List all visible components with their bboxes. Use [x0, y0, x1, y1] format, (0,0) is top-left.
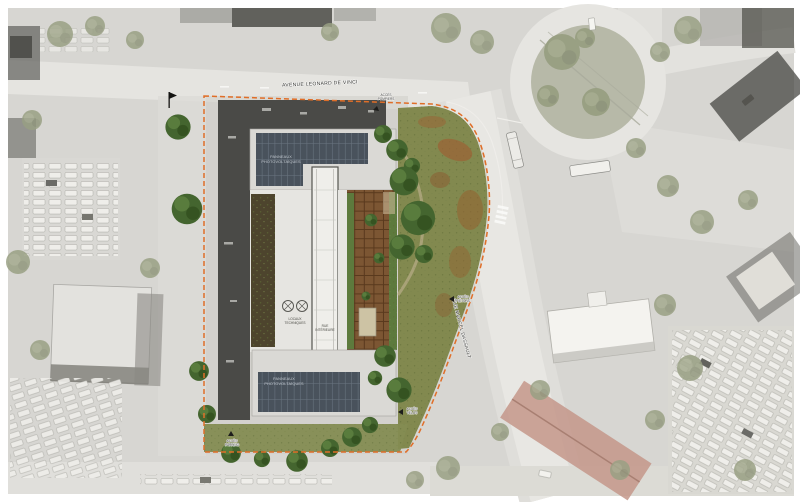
- courtyard-walk: [338, 190, 347, 352]
- atrium-label: RUE: [322, 324, 329, 328]
- tech-label: TECHNIQUES: [285, 321, 306, 325]
- solar-south-label: PHOTOVOLTAÏQUES: [264, 382, 304, 386]
- solar-array-south: PANNEAUX PHOTOVOLTAÏQUES: [258, 372, 360, 412]
- access-label-line: VÉLOS: [407, 410, 418, 415]
- car: [588, 18, 595, 30]
- site-plan-image: PANNEAUX PHOTOVOLTAÏQUES RUE INTÉRIEURE: [0, 0, 800, 502]
- access-label-line: ACCÈS: [458, 294, 469, 299]
- atrium-strip: RUE INTÉRIEURE: [312, 167, 338, 373]
- solar-south-label: PANNEAUX: [273, 377, 295, 381]
- building-complex: PANNEAUX PHOTOVOLTAÏQUES RUE INTÉRIEURE: [218, 100, 397, 420]
- access-label-line: POMPIERS: [378, 97, 395, 101]
- tech-label: LOCAUX: [288, 317, 302, 321]
- roundabout: [510, 4, 666, 160]
- site-plan-svg: PANNEAUX PHOTOVOLTAÏQUES RUE INTÉRIEURE: [0, 0, 800, 502]
- pergola-terrace: [347, 190, 397, 352]
- access-label-line: ACCÈS: [381, 92, 392, 97]
- solar-north-label: PHOTOVOLTAÏQUES: [261, 160, 301, 164]
- solar-north-label: PANNEAUX: [270, 155, 292, 159]
- access-label-line: PIÉTONS: [456, 298, 470, 303]
- garden-shed: [359, 308, 376, 336]
- access-label-line: PARKING: [225, 443, 240, 447]
- access-label-line: ACCÈS: [227, 438, 238, 443]
- atrium-label: INTÉRIEURE: [315, 327, 334, 332]
- access-label-line: ACCÈS: [407, 406, 418, 411]
